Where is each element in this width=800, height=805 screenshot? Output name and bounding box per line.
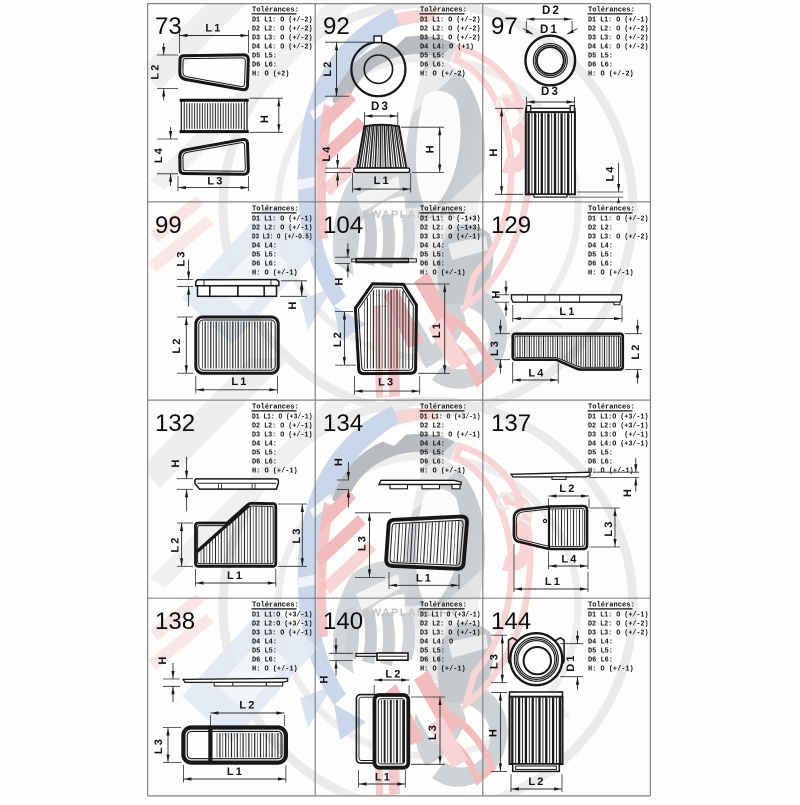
svg-text:L1: L1: [374, 175, 391, 187]
svg-text:D2 L2:: D2 L2:: [588, 224, 613, 232]
svg-text:D1 L1: O (+/-2): D1 L1: O (+/-2): [588, 215, 649, 223]
svg-text:H: H: [488, 727, 500, 737]
svg-text:D6 L6:: D6 L6:: [252, 61, 277, 69]
svg-text:132: 132: [155, 410, 195, 437]
svg-text:D5 L5:: D5 L5:: [420, 251, 445, 259]
svg-text:D5 L5:: D5 L5:: [588, 647, 613, 655]
svg-text:D3 L3: O (+/-1): D3 L3: O (+/-1): [420, 431, 481, 439]
svg-text:D5 L5:: D5 L5:: [420, 449, 445, 457]
svg-text:L1: L1: [227, 570, 244, 582]
svg-text:Tolérances:: Tolérances:: [588, 602, 635, 610]
svg-text:L4: L4: [321, 144, 333, 161]
svg-text:L1: L1: [205, 23, 222, 35]
svg-text:D4 L4: O (+1): D4 L4: O (+1): [420, 43, 474, 51]
svg-text:104: 104: [323, 212, 363, 239]
svg-text:L3: L3: [427, 723, 439, 740]
svg-text:D4 L4: O: D4 L4: O: [420, 638, 453, 646]
svg-text:L4: L4: [153, 146, 165, 163]
svg-text:L4: L4: [528, 367, 545, 379]
svg-text:L3: L3: [175, 249, 187, 266]
svg-text:H: O (+/-1): H: O (+/-1): [420, 665, 466, 673]
svg-text:D1 L1: O (+/-1): D1 L1: O (+/-1): [588, 16, 649, 24]
svg-text:D5 L5:: D5 L5:: [252, 52, 277, 60]
svg-text:D4 L4:: D4 L4:: [588, 638, 613, 646]
svg-text:L3: L3: [153, 737, 165, 754]
svg-text:D2 L2: O (+/-2): D2 L2: O (+/-2): [420, 25, 481, 33]
svg-text:D3 L3: O (+/-1): D3 L3: O (+/-1): [420, 629, 481, 637]
svg-text:D4 L4:O (+3/-1): D4 L4:O (+3/-1): [588, 440, 649, 448]
svg-text:137: 137: [491, 410, 531, 437]
svg-text:D4 L4:: D4 L4:: [588, 242, 613, 250]
svg-text:D4 L4: O (+/-2): D4 L4: O (+/-2): [252, 43, 313, 51]
svg-text:H: H: [424, 143, 436, 153]
svg-text:D4 L4:: D4 L4:: [420, 440, 445, 448]
svg-text:D3 L3: O (+/-2): D3 L3: O (+/-2): [588, 34, 649, 42]
svg-text:D1 L1: O (+/-2): D1 L1: O (+/-2): [252, 16, 313, 24]
svg-text:H: H: [157, 654, 169, 664]
svg-text:L2: L2: [171, 336, 183, 353]
svg-text:D1 L1: O (+3/-1): D1 L1: O (+3/-1): [420, 413, 481, 421]
svg-text:H: O (+/-1): H: O (+/-1): [252, 269, 298, 277]
svg-text:D5 L5:: D5 L5:: [588, 251, 613, 259]
svg-text:H: H: [333, 275, 345, 285]
svg-text:D3 L3: O (+/-2): D3 L3: O (+/-2): [588, 629, 649, 637]
svg-text:H: H: [319, 673, 331, 683]
svg-text:H: O (+/-1): H: O (+/-1): [588, 665, 634, 673]
svg-text:D1 L1: O (+3/-1): D1 L1: O (+3/-1): [420, 611, 481, 619]
svg-text:H: O (+/-1): H: O (+/-1): [588, 467, 634, 475]
svg-text:D2 L2:: D2 L2:: [420, 422, 445, 430]
svg-text:D6 L6:: D6 L6:: [588, 61, 613, 69]
svg-text:L1: L1: [231, 376, 248, 388]
svg-text:D1 L1: O (+3/-1): D1 L1: O (+3/-1): [252, 413, 313, 421]
svg-text:D5 L5:: D5 L5:: [588, 52, 613, 60]
svg-text:L1: L1: [375, 771, 392, 783]
svg-text:L4: L4: [605, 164, 617, 181]
svg-text:L2: L2: [150, 62, 162, 79]
svg-text:H: O (+/-1): H: O (+/-1): [420, 467, 466, 475]
svg-text:D1 L1: O (-1+3): D1 L1: O (-1+3): [420, 215, 481, 223]
svg-text:D3: D3: [371, 101, 390, 113]
svg-text:H: O (+/-2): H: O (+/-2): [588, 70, 634, 78]
svg-text:D3: D3: [541, 86, 560, 98]
svg-text:H: H: [488, 146, 500, 156]
svg-text:L1: L1: [545, 576, 562, 588]
svg-text:D6 L6:: D6 L6:: [420, 61, 445, 69]
svg-text:134: 134: [323, 410, 363, 437]
svg-text:L2: L2: [630, 342, 642, 359]
svg-text:H: O (+2): H: O (+2): [252, 70, 289, 78]
svg-text:L1: L1: [431, 321, 443, 338]
svg-text:H: H: [333, 456, 345, 466]
svg-text:92: 92: [323, 13, 350, 40]
svg-text:D5 L5:: D5 L5:: [252, 251, 277, 259]
svg-text:D2 L2: O (+/-1): D2 L2: O (+/-1): [420, 620, 481, 628]
svg-text:D4 L4:: D4 L4:: [420, 242, 445, 250]
svg-text:L3: L3: [603, 519, 615, 536]
svg-text:L2: L2: [528, 776, 545, 788]
svg-text:H: H: [259, 113, 271, 123]
svg-text:D1 L1:O (+3/-1): D1 L1:O (+3/-1): [588, 413, 649, 421]
svg-text:H: O (+/-1): H: O (+/-1): [420, 269, 466, 277]
svg-text:D2 L2: O (+/-2): D2 L2: O (+/-2): [588, 25, 649, 33]
svg-text:D3 L3: O (+/-O.5): D3 L3: O (+/-O.5): [252, 233, 313, 241]
svg-text:D6 L6:: D6 L6:: [588, 656, 613, 664]
svg-text:H: O (+/-1): H: O (+/-1): [252, 665, 298, 673]
svg-text:D2 L2: O (-1+3): D2 L2: O (-1+3): [420, 224, 481, 232]
svg-text:D4 L4:: D4 L4:: [252, 638, 277, 646]
svg-text:L2: L2: [239, 700, 256, 712]
svg-text:97: 97: [491, 13, 518, 40]
svg-text:140: 140: [323, 608, 363, 635]
svg-text:H: H: [490, 288, 502, 298]
svg-text:L1: L1: [227, 766, 244, 778]
svg-text:L2: L2: [332, 330, 344, 347]
svg-text:L3: L3: [291, 526, 303, 543]
svg-text:D3 L3: O (+/-1): D3 L3: O (+/-1): [420, 233, 481, 241]
svg-text:L2: L2: [169, 535, 181, 552]
svg-text:D3 L3:O (+/-1): D3 L3:O (+/-1): [588, 431, 649, 439]
svg-text:D2 L2: O (+/-2): D2 L2: O (+/-2): [588, 620, 649, 628]
svg-text:H: O (+/-1): H: O (+/-1): [252, 467, 298, 475]
svg-text:D3 L3: O (+/-2): D3 L3: O (+/-2): [420, 34, 481, 42]
svg-text:L3: L3: [489, 339, 501, 356]
svg-text:D4 L4:: D4 L4:: [252, 242, 277, 250]
svg-text:D6 L6:: D6 L6:: [588, 458, 613, 466]
svg-text:D5 L5:: D5 L5:: [252, 647, 277, 655]
svg-text:D3 L3: O (+/-1): D3 L3: O (+/-1): [252, 629, 313, 637]
svg-text:L3: L3: [207, 176, 224, 188]
svg-text:D2 L2:O (+3/-1): D2 L2:O (+3/-1): [588, 422, 649, 430]
svg-text:D6 L6:: D6 L6:: [252, 458, 277, 466]
svg-text:D3 L3: O (+/-2): D3 L3: O (+/-2): [252, 34, 313, 42]
svg-text:D5 L5:: D5 L5:: [588, 449, 613, 457]
svg-text:L2: L2: [322, 59, 334, 76]
svg-text:D2 L2: O (+/-1): D2 L2: O (+/-1): [252, 224, 313, 232]
svg-text:99: 99: [155, 212, 182, 239]
svg-text:D2: D2: [542, 5, 561, 17]
svg-text:D2 L2: O (+/-2): D2 L2: O (+/-2): [252, 25, 313, 33]
svg-text:Tolérances:: Tolérances:: [252, 602, 299, 610]
svg-text:D3 L3: O (+/-1): D3 L3: O (+/-1): [252, 431, 313, 439]
svg-text:D4 L4:: D4 L4:: [252, 440, 277, 448]
svg-text:73: 73: [155, 13, 182, 40]
svg-text:144: 144: [491, 608, 531, 635]
svg-text:L3: L3: [489, 652, 501, 669]
svg-text:D1 L1: O (+/-1): D1 L1: O (+/-1): [588, 611, 649, 619]
svg-text:D5 L5:: D5 L5:: [420, 52, 445, 60]
svg-text:L1: L1: [559, 306, 576, 318]
svg-text:D2 L2:O (+3/-1): D2 L2:O (+3/-1): [252, 620, 313, 628]
svg-text:D2 L2: O (+/-1): D2 L2: O (+/-1): [252, 422, 313, 430]
svg-text:L2: L2: [385, 669, 402, 681]
svg-text:D6 L6:: D6 L6:: [420, 260, 445, 268]
svg-text:H: H: [622, 487, 634, 497]
svg-text:H: H: [287, 299, 299, 309]
svg-text:H: O (+/-2): H: O (+/-2): [420, 70, 466, 78]
svg-text:Tolérances:: Tolérances:: [420, 602, 467, 610]
svg-text:D6 L6:: D6 L6:: [588, 260, 613, 268]
svg-text:D1 L1: O (+/-1): D1 L1: O (+/-1): [252, 215, 313, 223]
svg-text:D3 L3: O (+/-2): D3 L3: O (+/-2): [588, 233, 649, 241]
svg-text:D6 L6:: D6 L6:: [252, 260, 277, 268]
svg-text:L2: L2: [559, 483, 576, 495]
svg-text:D6 L6:: D6 L6:: [420, 458, 445, 466]
svg-text:D4 L4: O (+/-2): D4 L4: O (+/-2): [588, 43, 649, 51]
svg-text:L1: L1: [416, 573, 433, 585]
svg-text:L3: L3: [357, 534, 369, 551]
svg-text:D1 L1: O (+/-2): D1 L1: O (+/-2): [420, 16, 481, 24]
svg-text:H: O (+/-1): H: O (+/-1): [588, 269, 634, 277]
svg-text:D1: D1: [565, 653, 577, 671]
svg-text:D1 L1:O (+3/-1): D1 L1:O (+3/-1): [252, 611, 313, 619]
svg-text:L4: L4: [561, 554, 578, 566]
svg-text:138: 138: [155, 608, 195, 635]
svg-text:D1: D1: [540, 24, 559, 36]
svg-text:L3: L3: [378, 377, 395, 389]
svg-text:D6 L6:: D6 L6:: [252, 656, 277, 664]
svg-text:D5 L5:: D5 L5:: [252, 449, 277, 457]
svg-text:D6 L6:: D6 L6:: [420, 656, 445, 664]
svg-text:D5 L5:: D5 L5:: [420, 647, 445, 655]
svg-text:H: H: [170, 457, 182, 467]
svg-text:129: 129: [491, 212, 531, 239]
